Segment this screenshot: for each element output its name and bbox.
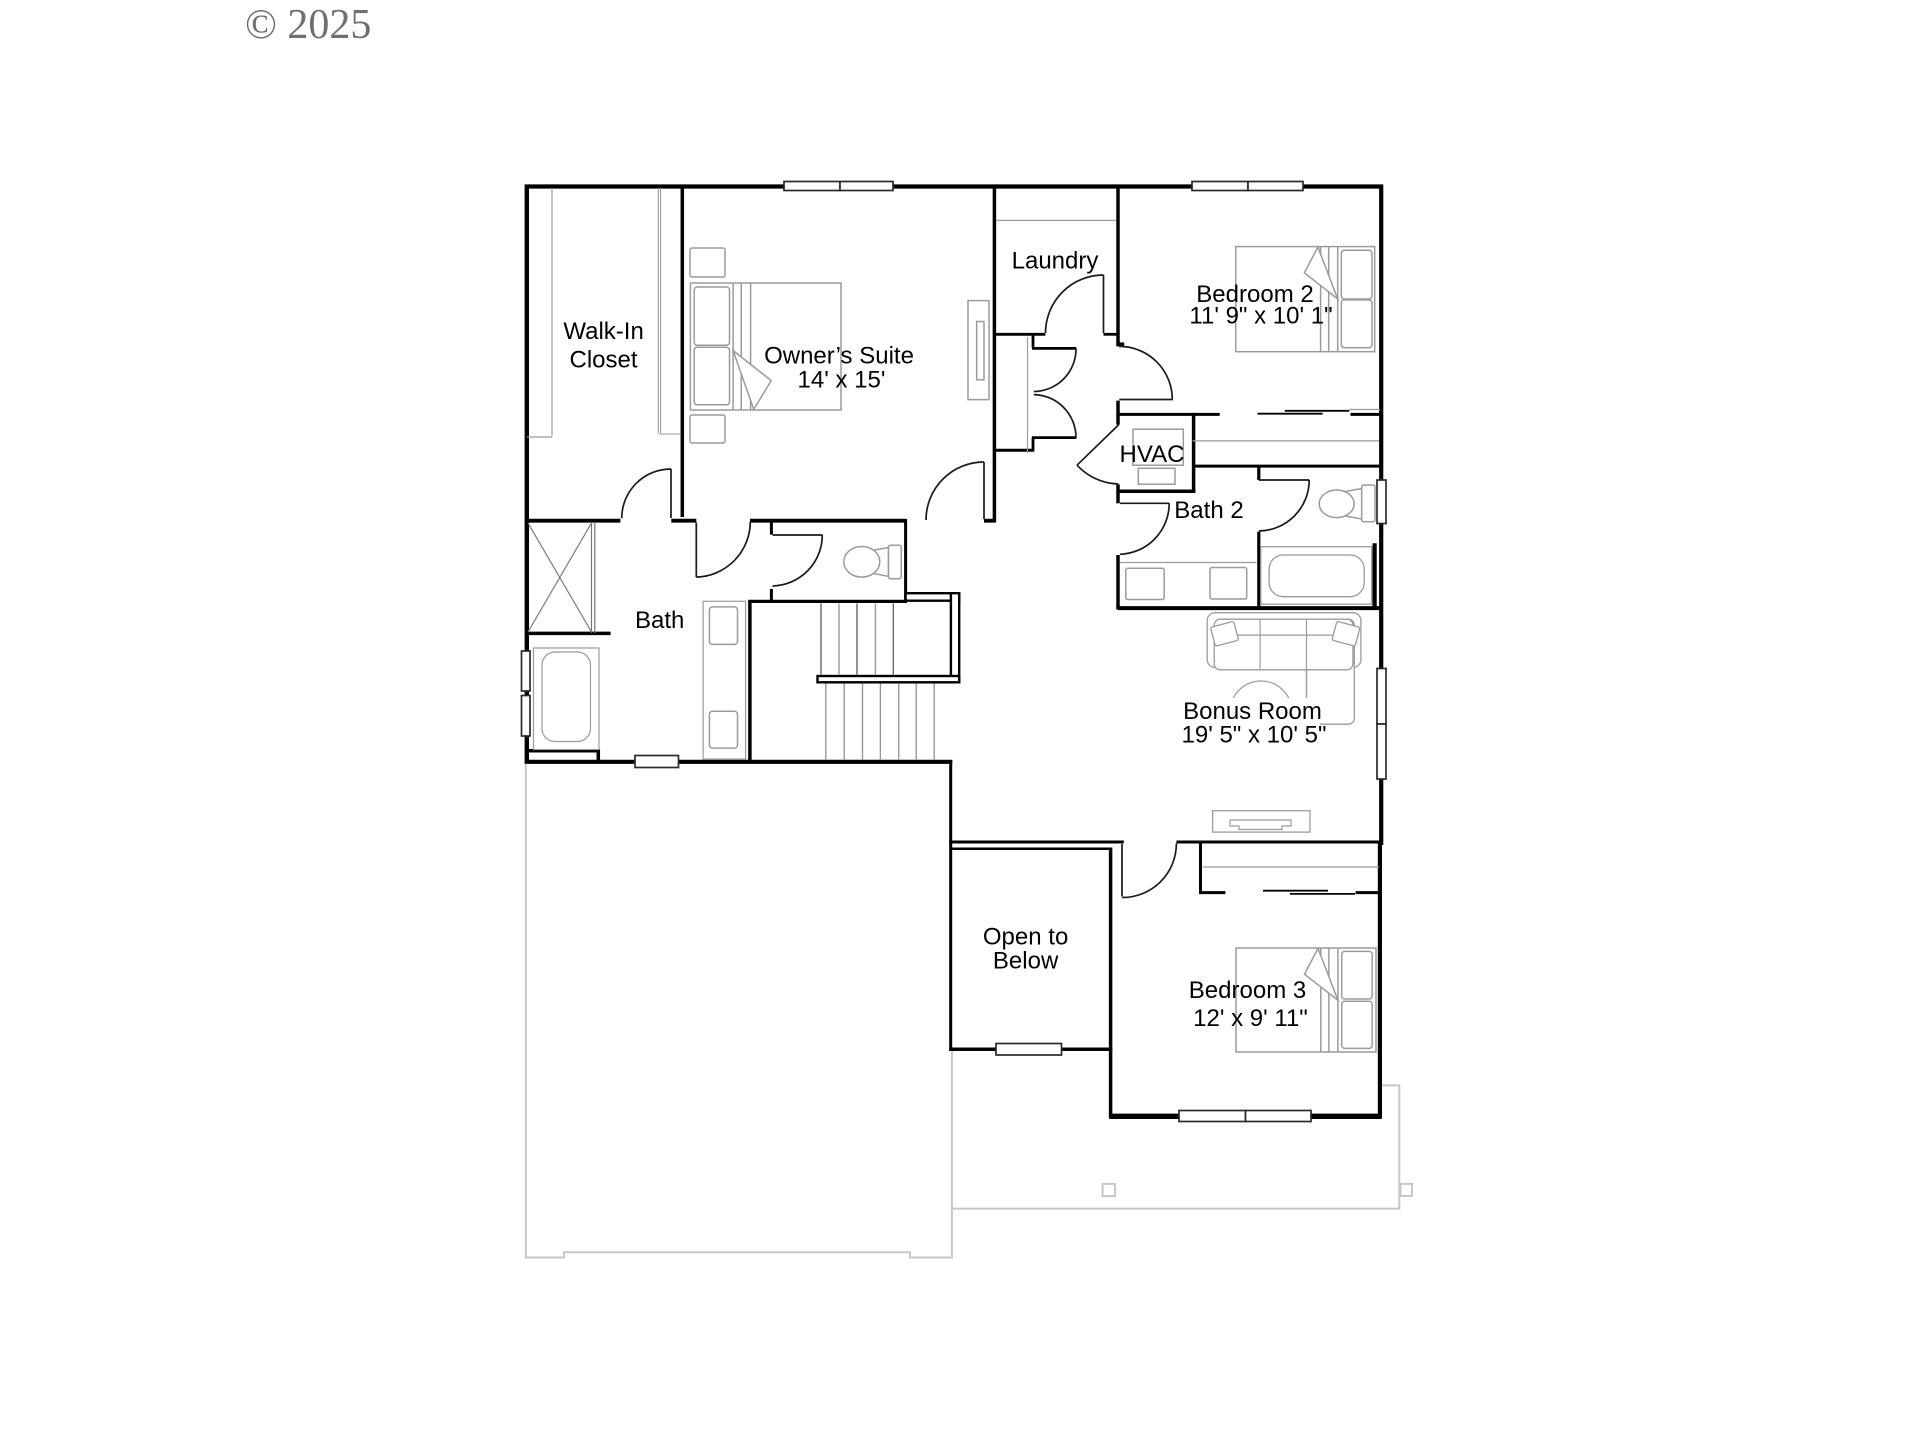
svg-text:14' x 15': 14' x 15' (798, 367, 886, 394)
svg-text:© 2025: © 2025 (245, 2, 371, 48)
svg-text:Bath 2: Bath 2 (1174, 497, 1243, 524)
svg-text:Bedroom 3: Bedroom 3 (1189, 977, 1306, 1004)
svg-text:Closet: Closet (569, 347, 637, 374)
svg-text:Open to: Open to (983, 924, 1068, 951)
svg-text:19' 5" x 10' 5": 19' 5" x 10' 5" (1182, 722, 1327, 749)
svg-text:12' x 9' 11": 12' x 9' 11" (1193, 1005, 1308, 1032)
svg-text:HVAC: HVAC (1120, 441, 1185, 468)
svg-text:Walk-In: Walk-In (563, 318, 643, 345)
svg-text:11' 9" x 10' 1": 11' 9" x 10' 1" (1189, 302, 1332, 329)
svg-text:Bath: Bath (635, 607, 684, 634)
svg-text:Below: Below (993, 948, 1059, 975)
svg-text:Owner’s Suite: Owner’s Suite (764, 342, 914, 369)
svg-text:Laundry: Laundry (1012, 247, 1099, 274)
